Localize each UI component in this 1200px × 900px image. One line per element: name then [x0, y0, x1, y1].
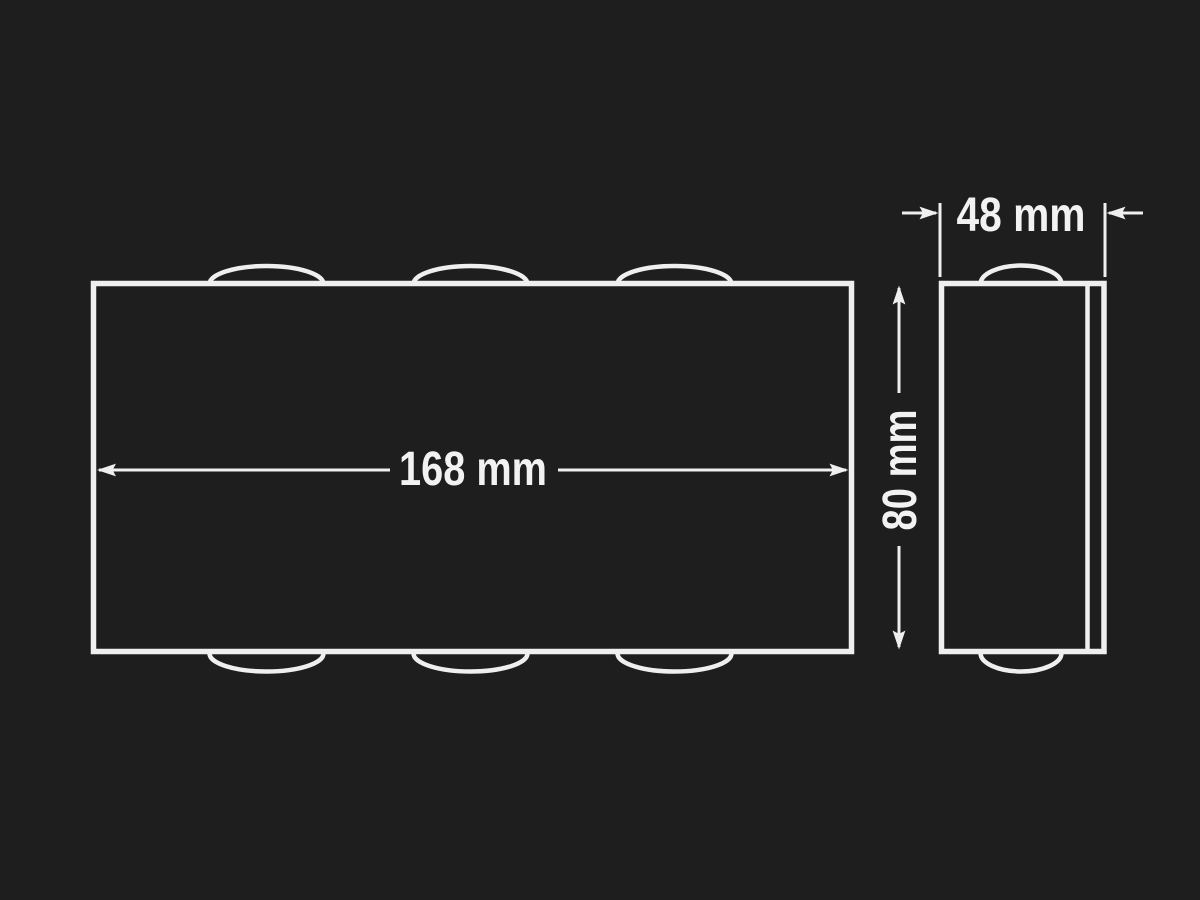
svg-text:80 mm: 80 mm — [874, 410, 927, 531]
svg-text:48 mm: 48 mm — [957, 189, 1086, 242]
svg-text:168 mm: 168 mm — [399, 443, 547, 496]
